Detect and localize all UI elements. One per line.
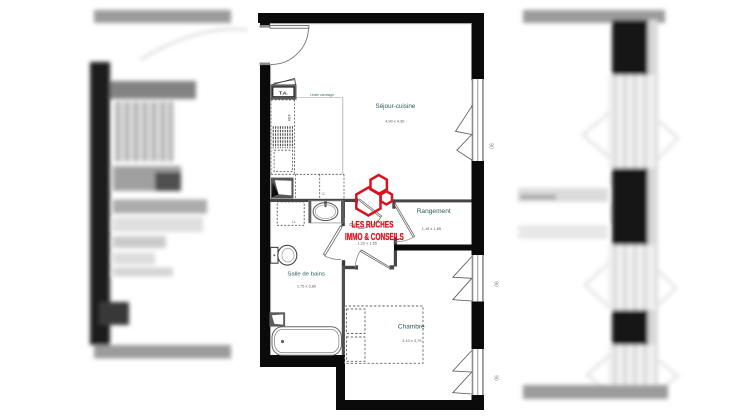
svg-text:REF: REF xyxy=(288,114,292,121)
svg-text:Salle de bains: Salle de bains xyxy=(287,272,325,278)
svg-text:LES RUCHES: LES RUCHES xyxy=(352,219,394,230)
svg-text:Chambre: Chambre xyxy=(398,324,425,331)
svg-text:90: 90 xyxy=(493,375,499,381)
svg-text:90: 90 xyxy=(488,143,494,149)
svg-text:Rangement: Rangement xyxy=(417,208,451,215)
svg-text:3,10 x 3,79: 3,10 x 3,79 xyxy=(402,338,421,343)
svg-text:1,15 x 1,85: 1,15 x 1,85 xyxy=(422,226,441,231)
svg-text:LL: LL xyxy=(292,220,296,224)
svg-text:90: 90 xyxy=(493,281,499,287)
svg-text:Limite carrelage: Limite carrelage xyxy=(310,93,334,97)
svg-text:IMMO & CONSEILS: IMMO & CONSEILS xyxy=(345,232,404,243)
svg-text:4,90 x 4,30: 4,90 x 4,30 xyxy=(385,118,405,123)
svg-text:Séjour-cuisine: Séjour-cuisine xyxy=(376,103,416,110)
svg-text:T.A.: T.A. xyxy=(279,90,288,96)
svg-text:1,75 x 3,80: 1,75 x 3,80 xyxy=(297,283,317,288)
svg-text:C: C xyxy=(322,192,325,196)
